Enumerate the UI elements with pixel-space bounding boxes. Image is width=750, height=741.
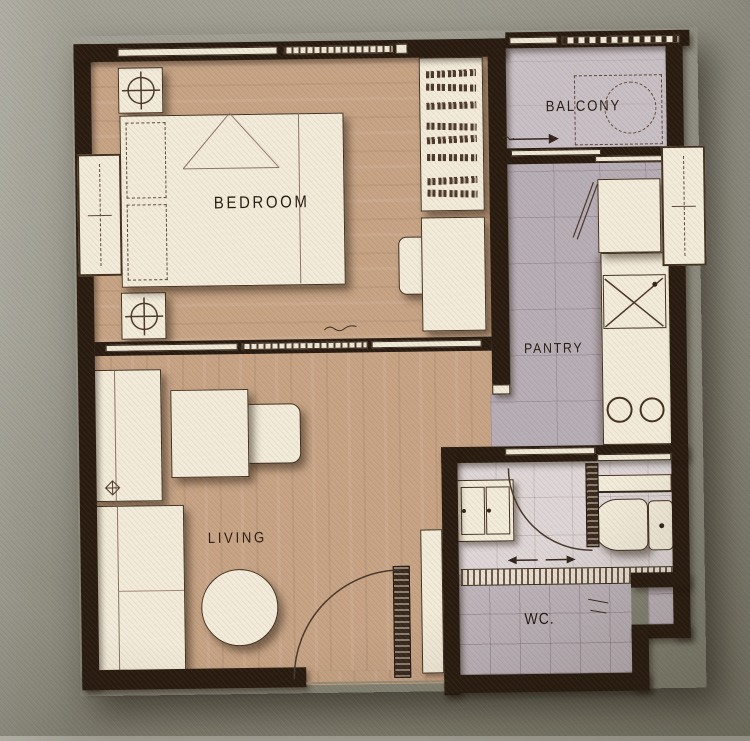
- bed-sheet-fold: [182, 113, 279, 169]
- sofa-lamp-icon: [106, 481, 120, 495]
- wc-door-swing-arc: [508, 467, 592, 551]
- fridge-door-swing: [572, 182, 598, 239]
- room-label-wc: WC.: [524, 611, 554, 629]
- floor-plan: BEDROOM BALCONY PANTRY LIVING WC.: [0, 0, 750, 741]
- linework-overlay: [0, 0, 750, 741]
- shower-door-arrows: [517, 560, 567, 561]
- balcony-arrow-head: [549, 134, 559, 144]
- ceiling-lamp-cross: [125, 297, 164, 336]
- annotation-scribble: [324, 326, 356, 331]
- room-label-living: LIVING: [208, 529, 267, 547]
- annotation-scribble: [503, 136, 514, 140]
- balcony-direction-arrow: [509, 139, 549, 140]
- ceiling-lamp-cross: [122, 71, 161, 110]
- annotation-scribble: [588, 599, 608, 613]
- entrance-door-swing-arc: [293, 570, 402, 679]
- room-label-balcony: BALCONY: [546, 97, 622, 115]
- room-label-pantry: PANTRY: [524, 339, 584, 356]
- room-label-bedroom: BEDROOM: [214, 192, 310, 213]
